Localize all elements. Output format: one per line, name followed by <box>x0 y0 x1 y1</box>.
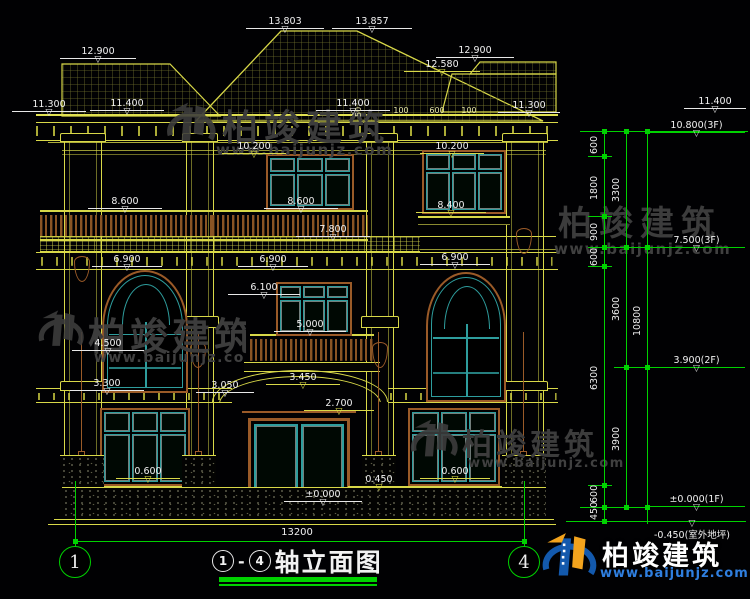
dim-tick <box>602 519 607 524</box>
window-pane <box>327 286 348 298</box>
chain-line <box>626 131 627 509</box>
window-pane <box>132 412 158 432</box>
title-axis-start: 1 <box>212 550 234 572</box>
watermark-logo <box>406 414 460 470</box>
chain-dim: 450 <box>588 500 601 522</box>
elevation-mark: 6.900 <box>420 249 490 265</box>
chain-line <box>647 131 648 524</box>
elevation-mark: 8.600 <box>88 193 162 209</box>
dim-tick <box>624 245 629 250</box>
dim-tick <box>602 245 607 250</box>
elevation-mark: 10.200 <box>420 138 484 154</box>
elevation-mark: 2.700 <box>304 395 374 411</box>
drawing-title: 1 - 4 轴立面图 <box>212 546 383 576</box>
elevation-mark: 11.300 <box>12 96 86 112</box>
axis-bubble-1: 1 <box>59 546 91 578</box>
window-pane <box>452 154 476 170</box>
small-dim: 50 <box>352 102 365 122</box>
dim-tick <box>602 214 607 219</box>
title-text: 轴立面图 <box>275 543 383 579</box>
elevation-mark: 4.500 <box>72 335 144 351</box>
dim-tick <box>522 539 527 544</box>
window-sill-3f-right <box>418 216 510 225</box>
watermark-logo <box>34 302 86 362</box>
small-dim: 600 <box>422 106 452 115</box>
ground-line <box>48 524 556 525</box>
window-mullion <box>466 324 468 396</box>
dim-tick <box>624 129 629 134</box>
elevation-mark: ±0.000 <box>284 486 362 502</box>
elevation-mark: 6.900 <box>238 251 308 267</box>
dim-tick <box>602 505 607 510</box>
title-axis-end: 4 <box>249 550 271 572</box>
small-dim: 100 <box>456 106 482 115</box>
window-pane <box>270 158 295 172</box>
overall-dim-line <box>75 541 524 542</box>
axis-extension-line <box>524 481 525 546</box>
brand-logo <box>536 528 600 590</box>
overall-dim-label: 13200 <box>262 527 332 538</box>
watermark-url-text: www.baijunjz.com <box>468 456 625 471</box>
column-capital <box>502 381 548 391</box>
dim-tick <box>73 539 78 544</box>
chain-dim: 600 <box>588 131 601 158</box>
chain-line <box>604 131 605 523</box>
pilaster-left <box>64 137 102 457</box>
elevation-mark: 8.600 <box>264 193 338 209</box>
dim-tick <box>624 505 629 510</box>
watermark-logo <box>162 97 218 155</box>
column-inner-left <box>186 137 214 457</box>
elevation-mark: 13.803 <box>246 13 324 29</box>
elevation-mark: 0.600 <box>116 463 180 479</box>
column-capital <box>361 316 399 328</box>
elevation-mark: 11.400 <box>90 95 164 111</box>
window-pane <box>104 412 130 432</box>
watermark-url-text: www.baijunjz.com <box>94 350 246 366</box>
elevation-mark: 12.580 <box>404 56 480 72</box>
elevation-mark: 0.600 <box>420 463 490 479</box>
elevation-mark: 3.050 <box>196 377 254 393</box>
chain-dim: 600 <box>588 247 601 267</box>
dim-tick <box>624 365 629 370</box>
elevation-mark: 3.450 <box>266 369 340 385</box>
elevation-mark: 7.800 <box>296 221 370 237</box>
column-capital <box>502 133 548 142</box>
column-capital <box>60 133 106 142</box>
elevation-mark: 3.300 <box>70 375 144 391</box>
elevation-mark: 12.900 <box>60 43 136 59</box>
window-transom <box>433 337 499 339</box>
window-pane <box>297 158 322 172</box>
dim-tick <box>602 154 607 159</box>
elevation-mark: 10.200 <box>222 138 286 154</box>
small-dim: 100 <box>388 106 414 115</box>
window-pane <box>325 158 350 172</box>
chain-dim: 1800 <box>588 160 601 216</box>
dim-tick <box>602 129 607 134</box>
window-transom <box>433 372 499 374</box>
window-pane <box>303 286 324 298</box>
elevation-mark: 6.100 <box>228 279 300 295</box>
chain-dim: 3600 <box>610 282 623 336</box>
elevation-mark: 5.000 <box>274 316 346 332</box>
elevation-mark: 0.450 <box>348 471 410 487</box>
elevation-mark: 11.300 <box>498 97 560 113</box>
chain-dim: 3300 <box>610 158 623 222</box>
window-pane <box>426 154 450 170</box>
window-2f-right-arched <box>426 272 506 402</box>
ground-line <box>54 519 554 520</box>
chain-dim: 10800 <box>631 290 644 352</box>
brand-url: www.baijunjz.com <box>600 566 749 581</box>
elevation-mark: 6.900 <box>92 251 162 267</box>
chain-connector <box>614 367 648 368</box>
dim-tick <box>602 264 607 269</box>
roof-right-upper <box>470 62 556 74</box>
pilaster-right <box>506 137 544 457</box>
elevation-drawing-canvas: 柏竣建筑 www.baijunjz.com 柏竣建筑 www.baijunjz.… <box>0 0 750 599</box>
chain-dim: 900 <box>588 217 601 247</box>
title-separator: - <box>238 552 245 571</box>
elevation-mark: 8.400 <box>416 197 486 213</box>
elevation-mark: 11.400 <box>684 93 746 109</box>
floor-level-mark: 10.800(3F) <box>648 117 745 133</box>
title-underline <box>219 577 377 582</box>
floor-level-mark: 3.900(2F) <box>648 352 745 368</box>
floor-level-mark: ±0.000(1F) <box>648 491 745 507</box>
chain-dim: 3900 <box>610 412 623 466</box>
chain-dim: 6300 <box>588 355 601 400</box>
elevation-mark: 13.857 <box>332 13 412 29</box>
floor-level-mark: 7.500(3F) <box>648 232 745 248</box>
dim-tick <box>602 483 607 488</box>
window-pane <box>160 412 186 432</box>
axis-extension-line <box>75 481 76 546</box>
title-underline <box>219 584 377 586</box>
window-pane <box>478 154 502 170</box>
